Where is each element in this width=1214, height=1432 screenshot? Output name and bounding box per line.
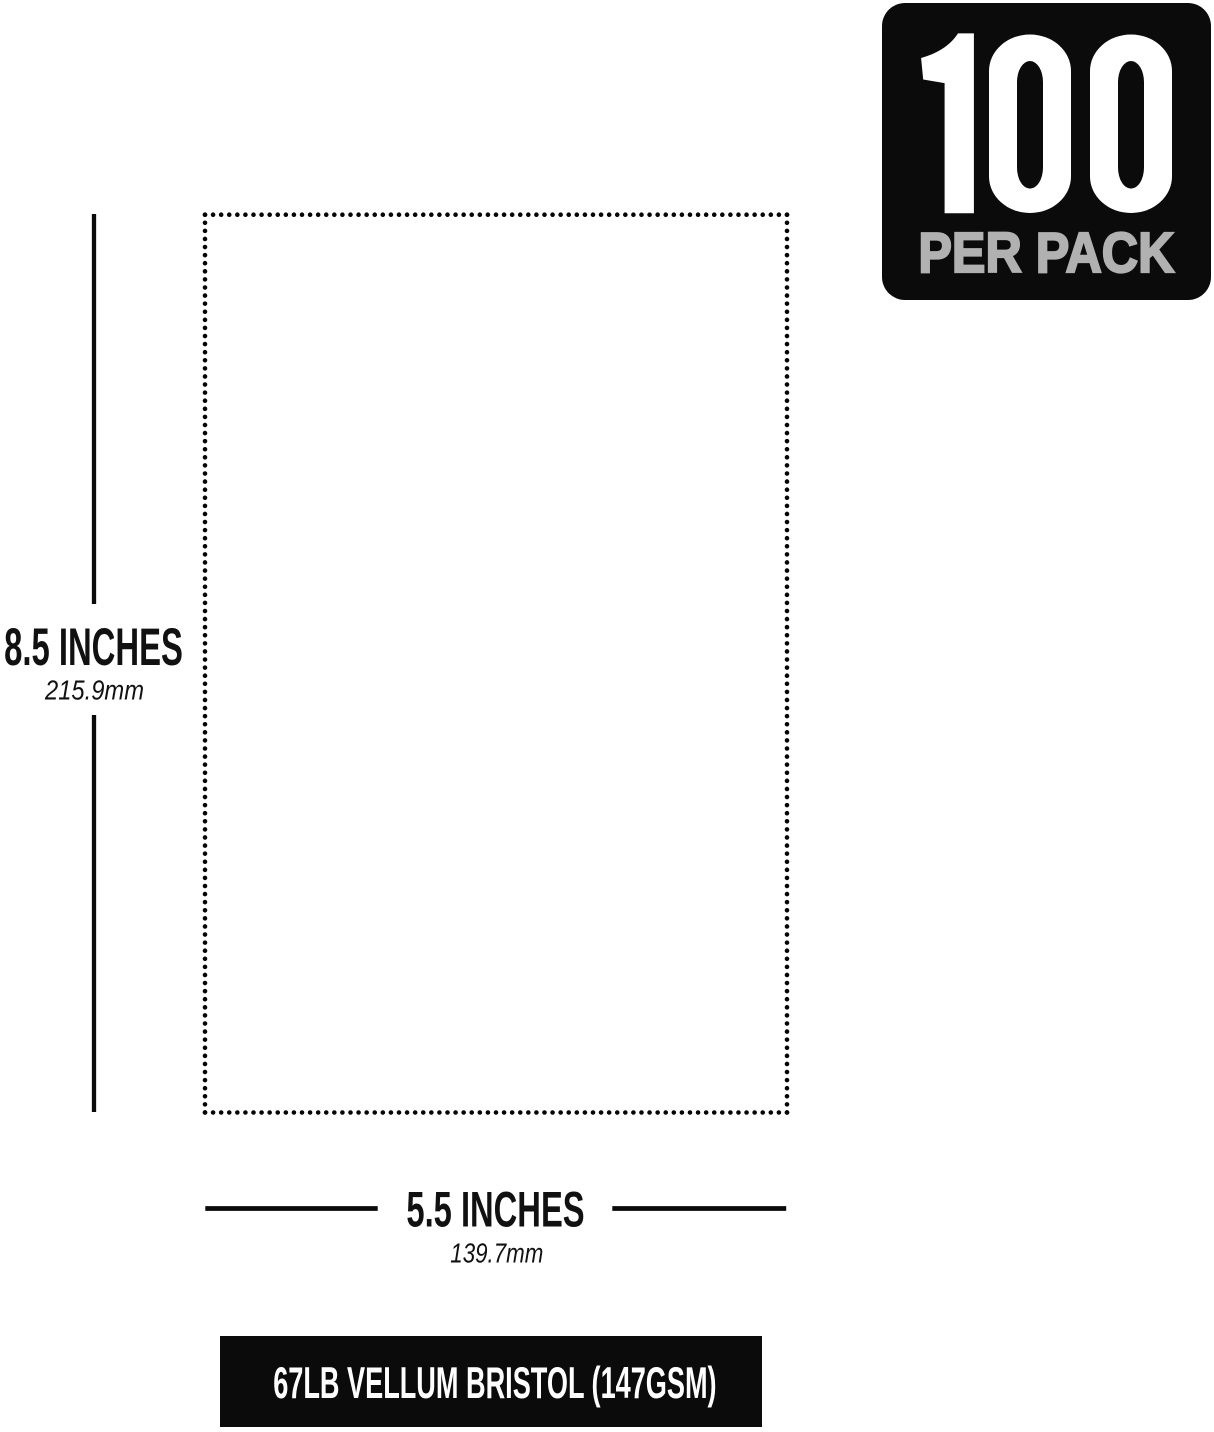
svg-text:215.9mm: 215.9mm: [44, 674, 144, 705]
svg-text:67LB VELLUM BRISTOL (147GSM): 67LB VELLUM BRISTOL (147GSM): [273, 1359, 716, 1408]
svg-text:5.5 INCHES: 5.5 INCHES: [406, 1182, 584, 1238]
svg-text:PER PACK: PER PACK: [918, 221, 1174, 284]
svg-text:8.5 INCHES: 8.5 INCHES: [4, 618, 183, 677]
svg-text:139.7mm: 139.7mm: [450, 1237, 543, 1268]
